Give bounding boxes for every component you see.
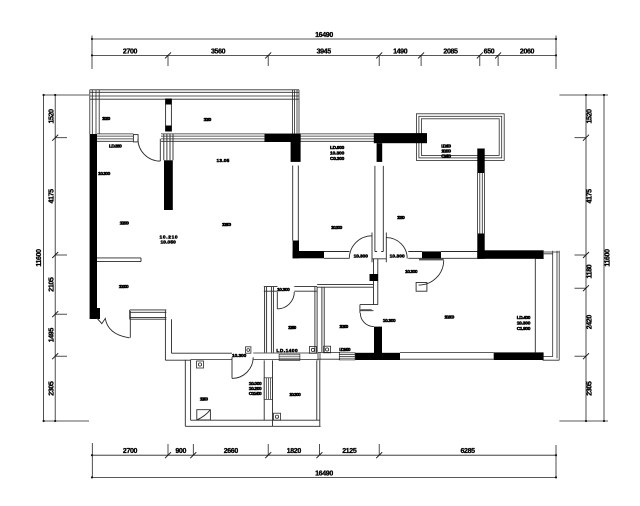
svg-text:LD.380: LD.380 [109,143,122,149]
svg-text:10.30: 10.30 [397,215,405,221]
svg-text:10.300: 10.300 [98,171,111,177]
svg-text:2305: 2305 [49,381,56,396]
svg-text:2305: 2305 [587,381,594,396]
svg-text:C1.900: C1.900 [517,326,531,332]
svg-text:10.300: 10.300 [390,254,405,260]
svg-text:LD.1400: LD.1400 [339,347,351,353]
svg-text:2085: 2085 [443,48,458,55]
svg-text:10.300: 10.300 [405,269,418,275]
svg-text:C0.300: C0.300 [330,156,345,162]
svg-text:10.300: 10.300 [517,321,531,327]
svg-text:10.050: 10.050 [161,239,177,245]
svg-text:LD.900: LD.900 [330,145,345,151]
svg-text:10.300: 10.300 [354,254,369,260]
svg-text:10.300: 10.300 [222,222,232,228]
svg-text:1490: 1490 [393,48,408,55]
svg-text:10.300: 10.300 [444,315,454,321]
svg-text:6285: 6285 [461,448,476,455]
svg-text:1495: 1495 [49,328,56,343]
svg-text:10.300: 10.300 [330,151,345,157]
svg-text:4175: 4175 [587,189,594,204]
svg-text:900: 900 [175,448,186,455]
svg-text:16490: 16490 [315,32,333,39]
svg-text:10.300: 10.300 [289,392,301,398]
svg-text:10.300: 10.300 [288,325,297,331]
svg-text:650: 650 [484,48,495,55]
svg-text:10.300: 10.300 [200,396,209,402]
svg-text:10.300: 10.300 [120,220,130,226]
svg-text:10.300: 10.300 [383,318,396,324]
svg-text:C0.1400: C0.1400 [249,391,262,397]
svg-text:10.300: 10.300 [331,225,343,231]
svg-text:10.300: 10.300 [232,353,247,359]
svg-text:10.300: 10.300 [339,324,348,330]
svg-text:2660: 2660 [224,448,239,455]
svg-text:2420: 2420 [587,315,594,330]
svg-text:3945: 3945 [317,48,332,55]
svg-text:3560: 3560 [211,48,226,55]
svg-text:10.30: 10.30 [204,117,212,123]
svg-text:2125: 2125 [342,448,357,455]
svg-text:LD.1400: LD.1400 [276,348,298,354]
svg-text:11600: 11600 [605,249,612,267]
svg-text:2700: 2700 [123,448,138,455]
svg-text:1180: 1180 [587,264,594,278]
svg-text:1520: 1520 [587,109,594,124]
svg-text:2060: 2060 [520,48,535,55]
svg-text:LD.400: LD.400 [517,315,531,321]
svg-text:2105: 2105 [49,277,56,292]
svg-text:10.300: 10.300 [119,284,129,290]
svg-text:10.30: 10.30 [102,116,111,122]
svg-text:C1.400: C1.400 [441,153,451,159]
svg-text:1520: 1520 [49,109,56,124]
svg-text:11600: 11600 [36,249,43,267]
svg-text:4175: 4175 [49,189,56,204]
svg-text:16490: 16490 [315,470,333,477]
svg-text:13.05: 13.05 [217,158,230,164]
svg-text:1820: 1820 [287,448,302,455]
svg-text:10.300: 10.300 [277,287,290,293]
svg-text:2700: 2700 [123,48,138,55]
